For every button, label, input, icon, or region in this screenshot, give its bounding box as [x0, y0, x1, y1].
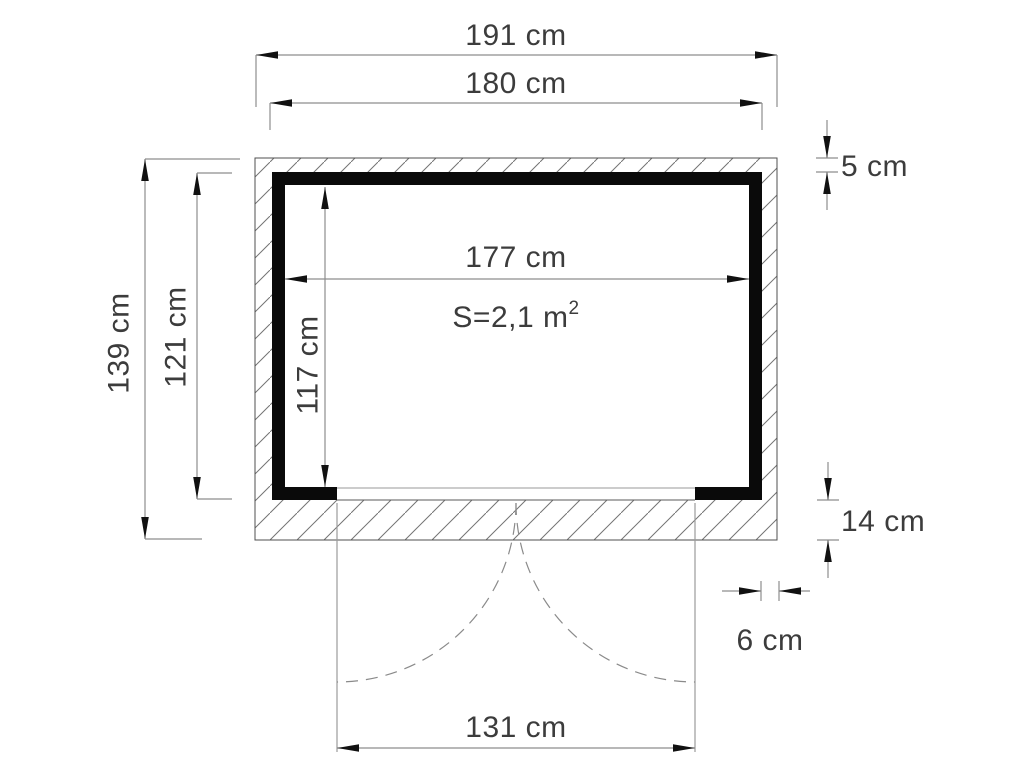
dimension-frame-depth-lines [197, 173, 232, 499]
dimension-wall-top-lines [816, 120, 838, 210]
inner-wall-bottom-right [695, 487, 762, 500]
area-label-main: S=2,1 m [452, 301, 568, 334]
area-label-exponent: 2 [568, 298, 579, 319]
dimension-base-height: 14 cm [817, 462, 925, 578]
floor-plan-drawing: 191 cm 180 cm 5 cm 139 cm 121 cm 177 cm [0, 0, 1024, 768]
inner-wall-bottom-left [272, 487, 337, 500]
inner-wall-right [749, 172, 762, 500]
wall-structure [255, 158, 777, 540]
arrowhead-right [740, 99, 762, 107]
floor-plan-canvas: 191 cm 180 cm 5 cm 139 cm 121 cm 177 cm [0, 0, 1024, 768]
dimension-wall-side-label: 6 cm [736, 624, 803, 657]
dimension-door-opening: 131 cm [337, 711, 695, 752]
dimension-frame-depth-label: 121 cm [160, 286, 193, 387]
dimension-outer-depth-label: 139 cm [103, 292, 136, 393]
arrowhead-left [779, 587, 801, 595]
arrowhead-right [673, 744, 695, 752]
dimension-wall-top-label: 5 cm [841, 150, 908, 183]
arrowhead-up [193, 173, 201, 195]
dimension-interior-width-label: 177 cm [465, 241, 566, 274]
arrowhead-down [193, 477, 201, 499]
inner-wall-left [272, 172, 285, 500]
arrowhead-left [256, 51, 278, 59]
arrowhead-down [823, 136, 831, 158]
dimension-outer-width-label: 191 cm [465, 19, 566, 52]
arrowhead-up [823, 172, 831, 194]
area-label: S=2,1 m2 [452, 298, 579, 334]
arrowhead-up [824, 540, 832, 562]
dimension-wall-thickness-top: 5 cm [816, 120, 908, 210]
interior-floor [272, 172, 762, 500]
dimension-interior-depth-label: 117 cm [292, 315, 325, 414]
dimension-base-height-label: 14 cm [841, 505, 925, 538]
arrowhead-down [824, 478, 832, 500]
arrowhead-right [755, 51, 777, 59]
arrowhead-up [141, 159, 149, 181]
dimension-frame-depth: 121 cm [160, 173, 233, 499]
arrowhead-down [141, 517, 149, 539]
dimension-frame-width-label: 180 cm [465, 67, 566, 100]
dimension-wall-thickness-side: 6 cm [722, 581, 810, 657]
arrowhead-left [337, 744, 359, 752]
dimension-frame-width: 180 cm [270, 67, 762, 130]
inner-wall-top [272, 172, 762, 185]
dimension-door-opening-label: 131 cm [465, 711, 566, 744]
arrowhead-right [739, 587, 761, 595]
dimension-frame-width-lines [270, 103, 762, 130]
arrowhead-left [270, 99, 292, 107]
